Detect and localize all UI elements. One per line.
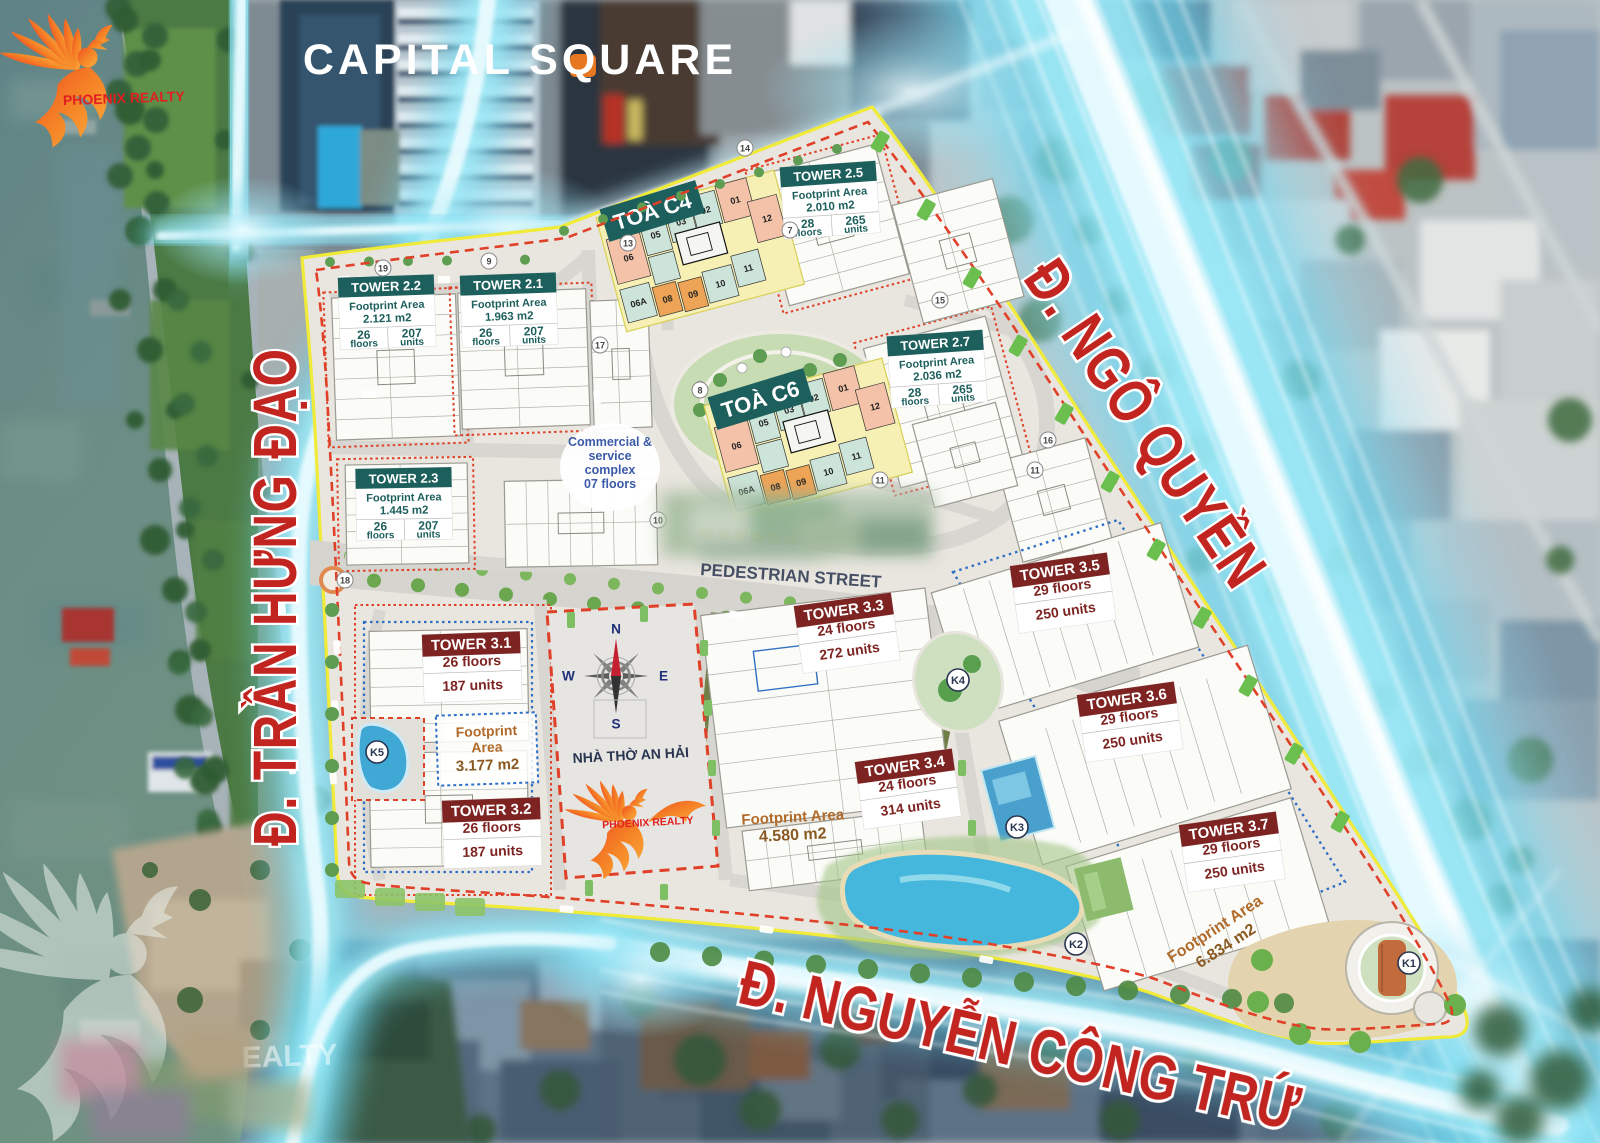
svg-text:187 units: 187 units xyxy=(442,676,503,694)
svg-text:EALTY: EALTY xyxy=(241,1038,338,1074)
svg-text:K2: K2 xyxy=(1069,939,1083,951)
svg-text:complex: complex xyxy=(585,463,636,477)
svg-text:26 floors: 26 floors xyxy=(462,818,521,836)
svg-text:10: 10 xyxy=(653,516,663,526)
svg-text:TOWER 2.2: TOWER 2.2 xyxy=(351,278,421,295)
svg-text:11: 11 xyxy=(1030,466,1040,476)
svg-text:TOWER 2.1: TOWER 2.1 xyxy=(473,276,543,293)
svg-text:floors: floors xyxy=(901,396,930,409)
svg-text:07 floors: 07 floors xyxy=(584,477,636,491)
svg-text:Footprint Area: Footprint Area xyxy=(366,491,442,504)
svg-text:Commercial &: Commercial & xyxy=(568,435,652,449)
svg-text:16: 16 xyxy=(1043,436,1053,446)
svg-text:8: 8 xyxy=(697,386,702,396)
svg-text:units: units xyxy=(951,392,976,405)
svg-text:Footprint: Footprint xyxy=(455,722,517,740)
svg-text:15: 15 xyxy=(935,296,945,306)
svg-text:1.445 m2: 1.445 m2 xyxy=(380,505,429,518)
svg-text:floors: floors xyxy=(350,338,379,350)
svg-text:7: 7 xyxy=(787,226,792,236)
svg-text:K3: K3 xyxy=(1010,822,1024,834)
svg-text:N: N xyxy=(611,622,621,637)
svg-text:9: 9 xyxy=(486,257,491,267)
svg-text:18: 18 xyxy=(340,576,350,586)
svg-text:K1: K1 xyxy=(1402,958,1416,970)
svg-text:S: S xyxy=(611,717,620,732)
svg-text:4.580 m2: 4.580 m2 xyxy=(759,825,828,846)
svg-text:26 floors: 26 floors xyxy=(442,652,501,670)
svg-text:units: units xyxy=(417,529,442,540)
svg-text:Đ. TRẦN HƯNG ĐẠO: Đ. TRẦN HƯNG ĐẠO xyxy=(240,348,309,846)
svg-text:K5: K5 xyxy=(370,747,384,759)
svg-text:1.963 m2: 1.963 m2 xyxy=(485,310,534,324)
svg-text:floors: floors xyxy=(367,530,395,541)
svg-text:units: units xyxy=(522,335,547,347)
svg-text:CAPITAL SQUARE: CAPITAL SQUARE xyxy=(303,36,737,84)
svg-text:K4: K4 xyxy=(951,675,966,687)
svg-text:Area: Area xyxy=(471,738,503,755)
svg-text:2.121 m2: 2.121 m2 xyxy=(363,312,412,326)
svg-text:service: service xyxy=(588,449,631,463)
svg-text:11: 11 xyxy=(875,476,885,486)
svg-text:units: units xyxy=(844,223,869,236)
svg-text:3.177 m2: 3.177 m2 xyxy=(456,756,520,775)
svg-text:17: 17 xyxy=(595,341,605,351)
svg-text:14: 14 xyxy=(740,144,750,154)
svg-text:187 units: 187 units xyxy=(462,842,523,860)
svg-text:W: W xyxy=(562,668,575,683)
svg-text:floors: floors xyxy=(472,336,501,348)
svg-text:units: units xyxy=(400,337,425,349)
svg-text:E: E xyxy=(659,668,668,683)
svg-text:TOWER 2.3: TOWER 2.3 xyxy=(369,470,439,486)
svg-text:13: 13 xyxy=(623,239,633,249)
svg-text:19: 19 xyxy=(378,264,388,274)
